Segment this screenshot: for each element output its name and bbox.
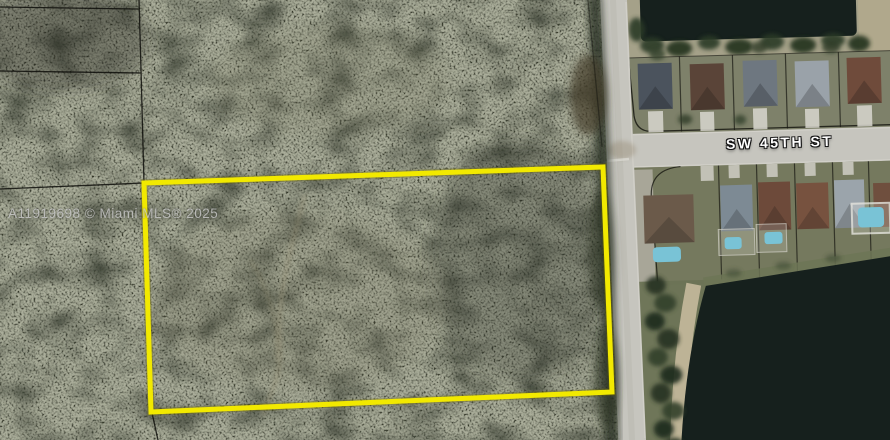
residential-neighborhood: [619, 0, 890, 440]
swimming-pool: [653, 247, 681, 263]
intersection-wear-patch: [608, 141, 636, 159]
north-pond-water: [639, 0, 857, 42]
aerial-listing-photo[interactable]: A11919698 © Miami MLS® 2025 SW 45TH ST: [0, 0, 890, 440]
swimming-pool: [858, 207, 885, 228]
swimming-pool: [724, 237, 741, 249]
swimming-pool: [764, 232, 782, 244]
mls-watermark: A11919698 © Miami MLS® 2025: [8, 206, 218, 221]
